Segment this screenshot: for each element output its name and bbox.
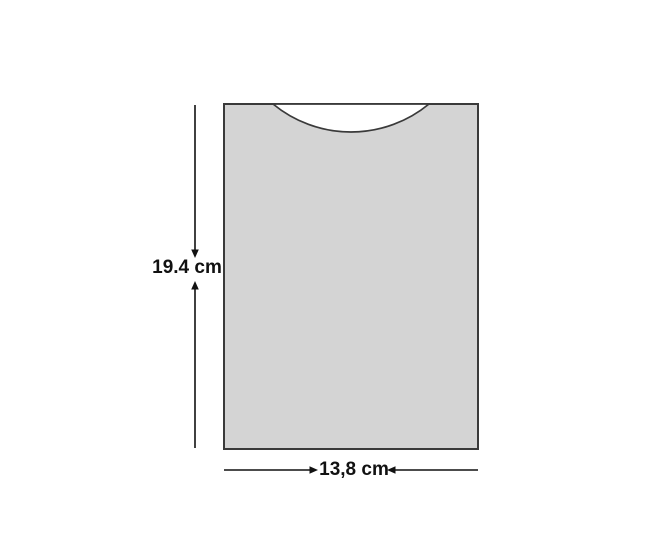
- sleeve-body-rectangle: [224, 104, 478, 449]
- height-dimension-label: 19.4 cm: [137, 257, 237, 279]
- arrow-up-icon: [191, 281, 199, 290]
- dimension-diagram: 19.4 cm 13,8 cm: [0, 0, 670, 543]
- width-dimension-label: 13,8 cm: [304, 459, 404, 481]
- sleeve-shape: [224, 104, 478, 449]
